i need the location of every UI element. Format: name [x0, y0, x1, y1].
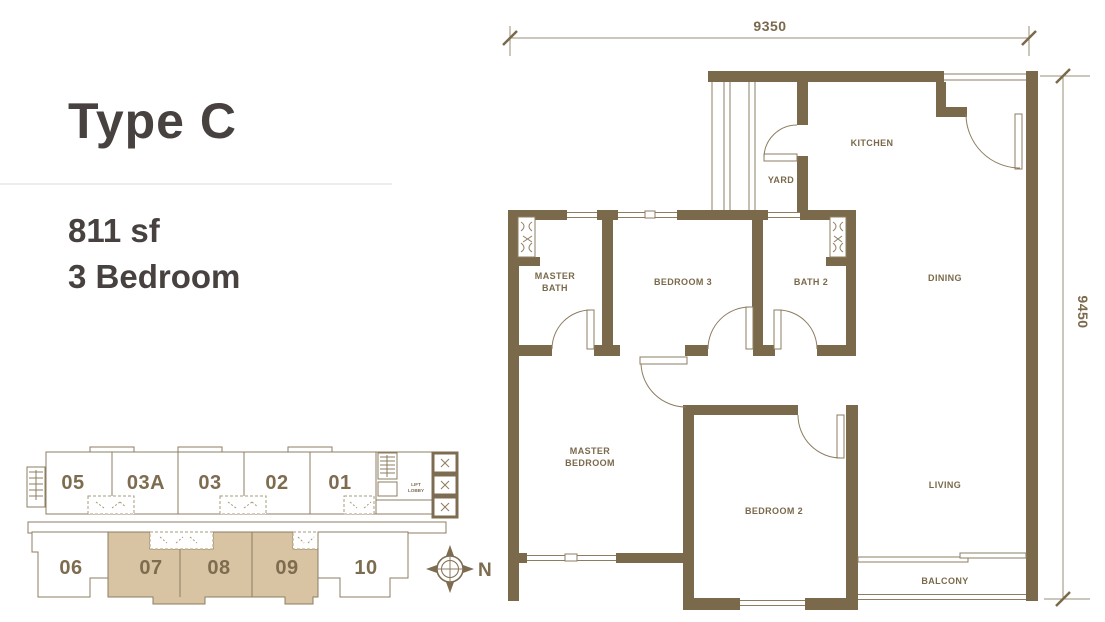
lift-icon [433, 497, 457, 517]
keyplan-unit-06: 06 [59, 557, 82, 579]
room-label-bedroom2: BEDROOM 2 [745, 506, 803, 516]
shower-icon [830, 217, 846, 257]
stairs-icon [27, 467, 45, 507]
dimension-top: 9350 [503, 18, 1036, 56]
room-label-yard: YARD [768, 175, 794, 185]
keyplan-unit-03: 03 [198, 472, 221, 494]
room-label-master-bath-1: MASTER [535, 271, 576, 281]
keyplan-corridor [28, 522, 446, 533]
room-labels: KITCHEN YARD MASTER BATH BEDROOM 3 BATH … [535, 138, 969, 586]
room-label-kitchen: KITCHEN [851, 138, 894, 148]
keyplan-unit-10: 10 [354, 557, 377, 579]
lift-icon [433, 475, 457, 495]
compass-north-label: N [478, 560, 492, 581]
keyplan-unit-03A: 03A [127, 472, 165, 494]
room-label-bedroom3: BEDROOM 3 [654, 277, 712, 287]
room-label-master-bedroom-1: MASTER [570, 446, 611, 456]
keyplan-unit-02: 02 [265, 472, 288, 494]
keyplan-unit-01: 01 [328, 472, 351, 494]
yard-door [764, 154, 797, 161]
room-label-master-bedroom-2: BEDROOM [565, 458, 615, 468]
keyplan-top-row: 05 03A 03 02 01 [27, 447, 376, 514]
bedroom2-door [837, 415, 844, 458]
room-label-balcony: BALCONY [921, 576, 968, 586]
room-label-bath2: BATH 2 [794, 277, 828, 287]
lift-lobby: LIFT LOBBY [376, 452, 457, 517]
compass-icon: N [426, 545, 492, 593]
master-bath-door [587, 310, 594, 349]
dimension-right-label: 9450 [1075, 295, 1091, 328]
room-label-living: LIVING [929, 480, 961, 490]
lift-lobby-label-2: LOBBY [408, 488, 424, 493]
room-label-master-bath-2: BATH [542, 283, 568, 293]
lift-lobby-label-1: LIFT [411, 482, 421, 487]
floorplan-page: Type C 811 sf 3 Bedroom 9350 [0, 0, 1105, 622]
keyplan-unit-09: 09 [275, 557, 298, 579]
key-plan: 05 03A 03 02 01 LIFT LOBBY [27, 447, 492, 604]
lift-icon [433, 453, 457, 473]
shower-icon [518, 217, 535, 257]
plan-drawing: 9350 9450 [0, 0, 1105, 622]
bedroom3-door [746, 307, 753, 349]
master-bedroom-door [640, 357, 687, 364]
room-label-dining: DINING [928, 273, 962, 283]
keyplan-bottom-row: 06 07 08 09 10 [32, 532, 408, 604]
stairs-icon [378, 453, 397, 479]
floor-plan: 9350 9450 [503, 18, 1091, 610]
bath2-door [774, 310, 781, 349]
bath-fixtures [518, 217, 846, 257]
keyplan-unit-08: 08 [207, 557, 230, 579]
dimension-right: 9450 [1040, 69, 1091, 606]
keyplan-unit-05: 05 [61, 472, 84, 494]
keyplan-unit-07: 07 [139, 557, 162, 579]
kitchen-door [1015, 114, 1022, 169]
dimension-top-label: 9350 [753, 18, 786, 34]
